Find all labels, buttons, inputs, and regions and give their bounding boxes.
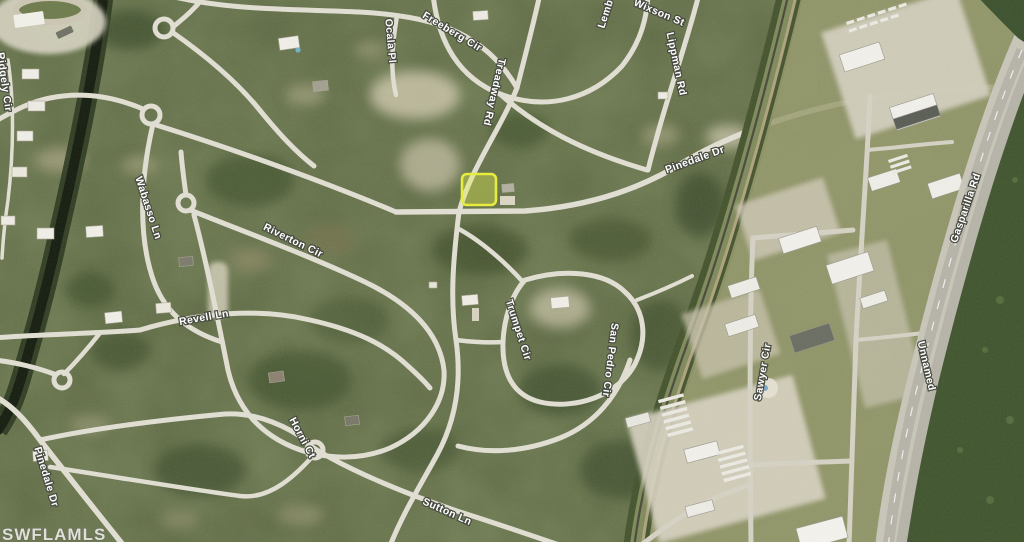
- watermark: SWFLAMLS: [2, 525, 106, 542]
- photo-grain: [0, 0, 1024, 542]
- aerial-map: Freeberg CirOcala PlRidgely CirLembWixso…: [0, 0, 1024, 542]
